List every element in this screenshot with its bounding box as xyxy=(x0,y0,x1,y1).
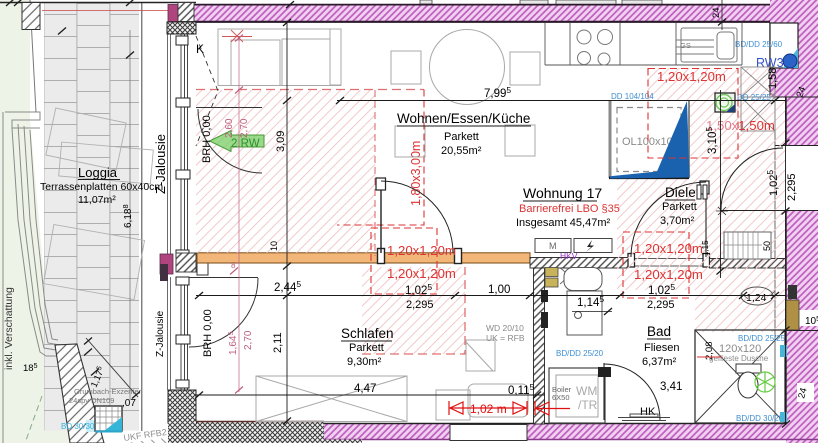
svg-text:BD/DD 25/25: BD/DD 25/25 xyxy=(738,334,786,343)
svg-text:Barrierefrei LBO §35: Barrierefrei LBO §35 xyxy=(519,203,620,215)
svg-text:20,55m²: 20,55m² xyxy=(441,145,482,157)
svg-text:Schlafen: Schlafen xyxy=(341,326,394,341)
svg-text:HKV: HKV xyxy=(560,251,578,261)
svg-text:2,70: 2,70 xyxy=(243,330,254,350)
svg-text:WD 20/10: WD 20/10 xyxy=(486,323,524,333)
svg-text:Grumbach-Exzenter: Grumbach-Exzenter xyxy=(74,387,142,396)
svg-text:1,24: 1,24 xyxy=(746,292,767,304)
svg-text:Diele: Diele xyxy=(665,185,696,200)
svg-text:K: K xyxy=(196,42,204,56)
svg-text:3,70m²: 3,70m² xyxy=(660,215,695,227)
svg-text:2.RW: 2.RW xyxy=(231,138,260,150)
svg-text:1,15: 1,15 xyxy=(701,240,710,256)
svg-text:2,295: 2,295 xyxy=(786,173,798,201)
svg-text:BRH 0,00: BRH 0,00 xyxy=(201,115,213,163)
svg-text:2,70: 2,70 xyxy=(239,118,250,138)
svg-text:BD/DD 30/20: BD/DD 30/20 xyxy=(736,414,784,423)
svg-text:1,20x1,20m: 1,20x1,20m xyxy=(387,266,456,281)
svg-text:1,58: 1,58 xyxy=(767,68,779,89)
svg-text:GS: GS xyxy=(680,41,691,50)
svg-text:2,295: 2,295 xyxy=(406,299,434,311)
svg-text:1,00: 1,00 xyxy=(488,284,510,296)
svg-text:2,295: 2,295 xyxy=(647,299,675,311)
svg-text:50: 50 xyxy=(762,241,772,251)
svg-text:inkl. Verschattung: inkl. Verschattung xyxy=(3,287,15,370)
svg-text:geflieste Dusche: geflieste Dusche xyxy=(709,354,769,363)
svg-text:6,37m²: 6,37m² xyxy=(642,356,677,368)
svg-text:UK = RFB: UK = RFB xyxy=(486,333,525,343)
svg-text:1,50x1,50m: 1,50x1,50m xyxy=(706,118,775,133)
svg-text:9,30m²: 9,30m² xyxy=(347,356,382,368)
svg-text:Parkett: Parkett xyxy=(662,201,697,213)
svg-text:Loggia: Loggia xyxy=(78,165,118,180)
svg-text:24spy DN109: 24spy DN109 xyxy=(69,396,114,405)
svg-text:24: 24 xyxy=(711,7,722,18)
svg-text:6X50: 6X50 xyxy=(552,393,570,402)
svg-text:3,09: 3,09 xyxy=(275,131,287,152)
svg-text:Bad: Bad xyxy=(647,324,671,339)
svg-text:105: 105 xyxy=(805,314,818,327)
svg-text:BD 30/30: BD 30/30 xyxy=(61,422,95,431)
svg-text:BD/DD 25/20: BD/DD 25/20 xyxy=(556,349,604,358)
svg-text:11,07m²: 11,07m² xyxy=(78,194,116,206)
svg-text:10: 10 xyxy=(269,241,279,251)
svg-text:3,41: 3,41 xyxy=(660,381,682,393)
svg-text:WM: WM xyxy=(576,384,597,398)
svg-text:Parkett: Parkett xyxy=(349,342,384,354)
svg-text:Fliesen: Fliesen xyxy=(644,342,679,354)
svg-text:,07: ,07 xyxy=(122,398,136,409)
svg-text:1,20x1,20m: 1,20x1,20m xyxy=(634,241,703,256)
svg-text:Insgesamt 45,47m²: Insgesamt 45,47m² xyxy=(516,217,610,229)
svg-text:Parkett: Parkett xyxy=(444,131,479,143)
svg-text:Terrassenplatten 60x40cm: Terrassenplatten 60x40cm xyxy=(40,181,163,193)
svg-text:1,20x1,20m: 1,20x1,20m xyxy=(387,243,456,258)
svg-text:2,60: 2,60 xyxy=(224,118,235,138)
svg-text:M: M xyxy=(549,241,557,251)
svg-text:Z-Jalousie: Z-Jalousie xyxy=(155,310,166,357)
svg-text:1,80x3,00m: 1,80x3,00m xyxy=(409,141,423,206)
svg-text:HK: HK xyxy=(640,406,656,418)
svg-text:2,11: 2,11 xyxy=(272,332,284,353)
svg-text:/TR: /TR xyxy=(578,398,598,412)
svg-text:Wohnung 17: Wohnung 17 xyxy=(523,185,602,201)
svg-text:BRH 0,00: BRH 0,00 xyxy=(202,309,214,357)
svg-text:Z-Jalousie: Z-Jalousie xyxy=(153,134,168,194)
svg-text:1,02 m: 1,02 m xyxy=(470,402,507,416)
svg-text:1,20x1,20m: 1,20x1,20m xyxy=(634,267,703,282)
svg-text:Wohnen/Essen/Küche: Wohnen/Essen/Küche xyxy=(397,111,530,126)
svg-text:8: 8 xyxy=(231,261,236,270)
svg-text:4,47: 4,47 xyxy=(354,383,376,395)
svg-text:1,20x1,20m: 1,20x1,20m xyxy=(657,69,726,84)
